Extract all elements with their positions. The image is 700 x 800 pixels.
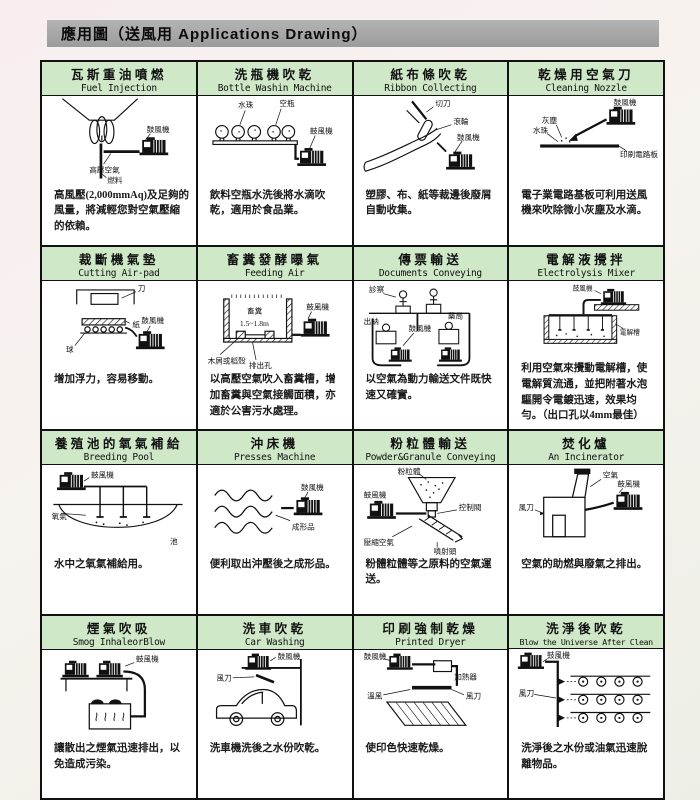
- ribbon-collecting-diagram: 切刀 滾輪 鼓風機: [354, 96, 508, 188]
- cell-title: 乾燥用空氣刀 Cleaning Nozzle: [509, 62, 663, 96]
- blower-icon: [140, 137, 169, 155]
- bottle-washing-diagram: 水珠 空瓶 鼓風機: [198, 96, 352, 188]
- diagram-label: 電解槽: [620, 327, 640, 336]
- diagram-label: 水珠: [238, 100, 254, 110]
- diagram-label: 灰塵: [542, 115, 558, 125]
- cell-title-en: Cleaning Nozzle: [509, 83, 663, 94]
- diagram-label: 鼓風機: [614, 97, 637, 107]
- fuel-injection-diagram: 鼓風機 高壓空氣 燃料: [42, 96, 196, 188]
- page-title-bar: 應用圖（送風用 Applications Drawing）: [47, 20, 659, 47]
- cell-title: 沖床機 Presses Machine: [198, 431, 352, 465]
- cleaning-nozzle-diagram: 鼓風機 灰塵 水珠 印刷電路板: [509, 96, 663, 188]
- blower-icon: [607, 107, 636, 125]
- cell-title-en: Presses Machine: [198, 452, 352, 463]
- cell-fuel-injection: 瓦斯重油噴燃 Fuel Injection 鼓風機 高壓空氣 燃料: [41, 61, 197, 246]
- cell-title-zh: 電解液攪拌: [509, 249, 663, 268]
- cell-title-en: Bottle Washin Machine: [198, 83, 352, 94]
- cell-description: 洗淨後之水份或油氣迅速脫離物品。: [509, 741, 663, 798]
- cell-description: 粉體粒體等之原料的空氣運送。: [354, 557, 508, 614]
- blower-icon: [57, 472, 86, 490]
- cell-description: 以高壓空氣吹入畜糞槽，增加畜糞與空氣接觸面積，亦適於公害污水處理。: [198, 372, 352, 429]
- cell-cutting-air-pad: 裁斷機氣墊 Cutting Air-pad: [41, 246, 197, 431]
- blower-icon: [96, 660, 122, 677]
- cell-title-en: Electrolysis Mixer: [509, 268, 663, 279]
- smog-inhale-blow-diagram: 鼓風機: [42, 650, 196, 742]
- blower-icon: [614, 492, 643, 510]
- diagram-label: 鼓風機: [147, 124, 170, 134]
- cell-description: 高風壓(2,000mmAq)及足夠的風量，將減輕您對空氣壓縮的依賴。: [42, 188, 196, 245]
- diagram-label: 鼓風機: [408, 323, 431, 333]
- cell-description: 以空氣為動力輸送文件既快速又確實。: [354, 372, 508, 429]
- diagram-label: 噴射頭: [433, 546, 456, 556]
- cell-title-en: Documents Conveying: [354, 268, 508, 279]
- cell-breeding-pool: 養殖池的氧氣補給 Breeding Pool: [41, 430, 197, 615]
- cell-title: 煙氣吹吸 Smog InhaleorBlow: [42, 616, 196, 650]
- cell-description: 增加浮力，容易移動。: [42, 372, 196, 429]
- diagram-label: 控制閥: [458, 502, 481, 512]
- cell-title-zh: 洗淨後吹乾: [509, 618, 663, 637]
- cell-title-en: Powder&Granule Conveying: [354, 452, 508, 463]
- diagram-label: 木屑或稻殼: [207, 355, 245, 365]
- diagram-label: 排出孔: [249, 360, 272, 370]
- blower-icon: [367, 501, 396, 519]
- diagram-label: 印刷電路板: [620, 149, 658, 159]
- diagram-label: 鼓風機: [547, 650, 570, 660]
- cell-title-zh: 養殖池的氧氣補給: [42, 433, 196, 452]
- diagram-label: 刀: [138, 283, 146, 292]
- cell-title-zh: 乾燥用空氣刀: [509, 64, 663, 83]
- cell-printed-dryer: 印刷強制乾燥 Printed Dryer: [353, 615, 509, 800]
- cell-description: 空氣的助燃與廢氣之排出。: [509, 557, 663, 614]
- presses-machine-diagram: 鼓風機 成形品: [198, 465, 352, 557]
- diagram-label: 鼓風機: [363, 489, 386, 499]
- cell-bottle-washing: 洗瓶機吹乾 Bottle Washin Machine: [197, 61, 353, 246]
- diagram-label: 加熱器: [454, 671, 477, 681]
- cell-title-zh: 印刷強制乾燥: [354, 618, 508, 637]
- blower-icon: [438, 347, 461, 361]
- cell-title-en: Blow the Universe After Clean: [509, 637, 663, 647]
- catalog-page: 應用圖（送風用 Applications Drawing） 瓦斯重油噴燃 Fue…: [0, 0, 700, 800]
- diagram-label: 畜糞: [247, 305, 263, 315]
- incinerator-diagram: 空氣 鼓風機 風刀: [509, 465, 663, 557]
- diagram-label: 切刀: [435, 99, 450, 108]
- diagram-label: 鼓風機: [363, 650, 386, 660]
- diagram-label: 鼓風機: [306, 301, 329, 311]
- diagram-label: 空氣: [603, 470, 619, 480]
- diagram-label: 鼓風機: [277, 650, 300, 660]
- cell-powder-granule-conveying: 粉粒體輸送 Powder&Granule Conveying: [353, 430, 509, 615]
- blow-after-clean-diagram: 鼓風機 風刀: [509, 649, 663, 742]
- cell-title: 裁斷機氣墊 Cutting Air-pad: [42, 247, 196, 281]
- diagram-label: 鼓風機: [573, 283, 593, 292]
- cutting-air-pad-diagram: 刀 紙 鼓風機 球: [42, 281, 196, 373]
- diagram-label: 風刀: [519, 503, 534, 512]
- diagram-label: 池: [170, 536, 178, 546]
- cell-description: 使印色快速乾燥。: [354, 741, 508, 798]
- cell-title: 傳票輸送 Documents Conveying: [354, 247, 508, 281]
- cell-title-zh: 煙氣吹吸: [42, 618, 196, 637]
- diagram-label: 成形品: [292, 522, 315, 532]
- diagram-label: 風刀: [465, 691, 480, 700]
- car-washing-diagram: 鼓風機 風刀: [198, 650, 352, 742]
- diagram-label: 高壓空氣: [89, 164, 120, 174]
- cell-description: 便利取出沖壓後之成形品。: [198, 557, 352, 614]
- cell-incinerator: 焚化爐 An Incinerator: [508, 430, 664, 615]
- diagram-label: 紙: [132, 318, 140, 328]
- blower-icon: [386, 653, 412, 669]
- cell-smog-inhale-blow: 煙氣吹吸 Smog InhaleorBlow: [41, 615, 197, 800]
- cell-title: 粉粒體輸送 Powder&Granule Conveying: [354, 431, 508, 465]
- diagram-label: 鼓風機: [310, 126, 333, 136]
- feeding-air-diagram: 畜糞 1.5~1.8m 鼓風機 木屑或稻殼 排出孔: [198, 281, 352, 373]
- cell-title: 電解液攪拌 Electrolysis Mixer: [509, 247, 663, 281]
- cell-title-zh: 傳票輸送: [354, 249, 508, 268]
- blower-icon: [136, 331, 165, 349]
- diagram-label: 氧氣: [52, 511, 68, 521]
- cell-title: 畜糞發酵曝氣 Feeding Air: [198, 247, 352, 281]
- cell-description: 洗車機洗後之水份吹乾。: [198, 741, 352, 798]
- page-title: 應用圖（送風用 Applications Drawing）: [61, 23, 368, 44]
- blower-icon: [293, 497, 322, 515]
- printed-dryer-diagram: 鼓風機 加熱器 溫風 風刀: [354, 650, 508, 742]
- cell-documents-conveying: 傳票輸送 Documents Conveying: [353, 246, 509, 431]
- cell-ribbon-collecting: 紙布條吹乾 Ribbon Collecting 切刀: [353, 61, 509, 246]
- cell-title-zh: 畜糞發酵曝氣: [198, 249, 352, 268]
- cell-title-en: Feeding Air: [198, 268, 352, 279]
- diagram-label: 壓縮空氣: [363, 537, 394, 547]
- blower-icon: [601, 288, 626, 304]
- cell-description: 利用空氣來攪動電解槽，使電解質流通，並把附著水泡驅開令電鍍迅速，效果均勻。（出口…: [509, 361, 663, 429]
- blower-icon: [446, 152, 475, 170]
- diagram-label: 空瓶: [279, 98, 295, 108]
- diagram-label: 出納: [363, 316, 378, 326]
- cell-title-zh: 洗車吹乾: [198, 618, 352, 637]
- diagram-label: 粉粒體: [397, 466, 420, 476]
- cell-feeding-air: 畜糞發酵曝氣 Feeding Air: [197, 246, 353, 431]
- cell-title: 洗淨後吹乾 Blow the Universe After Clean: [509, 616, 663, 649]
- diagram-label: 鼓風機: [136, 653, 159, 663]
- diagram-label: 鼓風機: [91, 470, 114, 480]
- cell-title-en: Car Washing: [198, 637, 352, 648]
- cell-title: 洗瓶機吹乾 Bottle Washin Machine: [198, 62, 352, 96]
- diagram-label: 燃料: [107, 175, 123, 185]
- cell-title: 紙布條吹乾 Ribbon Collecting: [354, 62, 508, 96]
- blower-icon: [297, 148, 326, 166]
- blower-icon: [388, 347, 411, 361]
- cell-title-zh: 紙布條吹乾: [354, 64, 508, 83]
- diagram-label: 鼓風機: [618, 479, 641, 489]
- diagram-label: 鼓風機: [456, 132, 479, 142]
- diagram-label: 球: [66, 343, 74, 353]
- cell-title: 養殖池的氧氣補給 Breeding Pool: [42, 431, 196, 465]
- cell-title-en: Ribbon Collecting: [354, 83, 508, 94]
- cell-title-zh: 裁斷機氣墊: [42, 249, 196, 268]
- cell-blow-after-clean: 洗淨後吹乾 Blow the Universe After Clean: [508, 615, 664, 800]
- blower-icon: [301, 318, 330, 336]
- cell-title-en: Printed Dryer: [354, 637, 508, 648]
- cell-title-en: Fuel Injection: [42, 83, 196, 94]
- cell-title-zh: 瓦斯重油噴燃: [42, 64, 196, 83]
- cell-title-en: Smog InhaleorBlow: [42, 637, 196, 648]
- cell-title-zh: 沖床機: [198, 433, 352, 452]
- breeding-pool-diagram: 鼓風機 氧氣 池: [42, 465, 196, 557]
- cell-description: 飲料空瓶水洗後將水滴吹乾，適用於食品業。: [198, 188, 352, 245]
- cell-car-washing: 洗車吹乾 Car Washing: [197, 615, 353, 800]
- blower-icon: [62, 660, 88, 677]
- cell-title-zh: 洗瓶機吹乾: [198, 64, 352, 83]
- documents-conveying-diagram: 診察 出納 鼓風機 藥局: [354, 281, 508, 373]
- blower-icon: [245, 653, 271, 669]
- diagram-label: 鼓風機: [301, 482, 324, 492]
- cell-title-en: Breeding Pool: [42, 452, 196, 463]
- diagram-label: 溫風: [367, 691, 383, 700]
- diagram-label: 風刀: [216, 673, 231, 682]
- applications-grid: 瓦斯重油噴燃 Fuel Injection 鼓風機 高壓空氣 燃料: [40, 60, 665, 800]
- cell-title: 洗車吹乾 Car Washing: [198, 616, 352, 650]
- cell-title-zh: 粉粒體輸送: [354, 433, 508, 452]
- cell-cleaning-nozzle: 乾燥用空氣刀 Cleaning Nozzle 鼓風機 灰塵: [508, 61, 664, 246]
- cell-title: 印刷強制乾燥 Printed Dryer: [354, 616, 508, 650]
- cell-title-en: Cutting Air-pad: [42, 268, 196, 279]
- blower-icon: [518, 652, 544, 668]
- powder-conveying-diagram: 粉粒體 鼓風機 控制閥 壓縮空氣 噴射頭: [354, 465, 508, 557]
- diagram-label: 鼓風機: [141, 315, 164, 325]
- cell-presses-machine: 沖床機 Presses Machine 鼓風機 成形品: [197, 430, 353, 615]
- cell-description: 水中之氧氣補給用。: [42, 557, 196, 614]
- diagram-label: 1.5~1.8m: [240, 318, 269, 327]
- diagram-label: 風刀: [519, 689, 534, 698]
- cell-title: 瓦斯重油噴燃 Fuel Injection: [42, 62, 196, 96]
- cell-title: 焚化爐 An Incinerator: [509, 431, 663, 465]
- diagram-label: 藥局: [447, 310, 462, 320]
- electrolysis-mixer-diagram: 鼓風機 電解槽: [509, 281, 663, 362]
- diagram-label: 診察: [368, 283, 384, 293]
- cell-description: 電子業電路基板可利用送風機來吹除微小灰塵及水滴。: [509, 188, 663, 245]
- cell-title-en: An Incinerator: [509, 452, 663, 463]
- cell-description: 讓散出之煙氣迅速排出，以免造成污染。: [42, 741, 196, 798]
- cell-description: 塑膠、布、紙等裁邊後廢屑自動收集。: [354, 188, 508, 245]
- diagram-label: 滾輪: [453, 116, 469, 126]
- diagram-label: 水珠: [533, 125, 549, 135]
- cell-electrolysis-mixer: 電解液攪拌 Electrolysis Mixer: [508, 246, 664, 431]
- cell-title-zh: 焚化爐: [509, 433, 663, 452]
